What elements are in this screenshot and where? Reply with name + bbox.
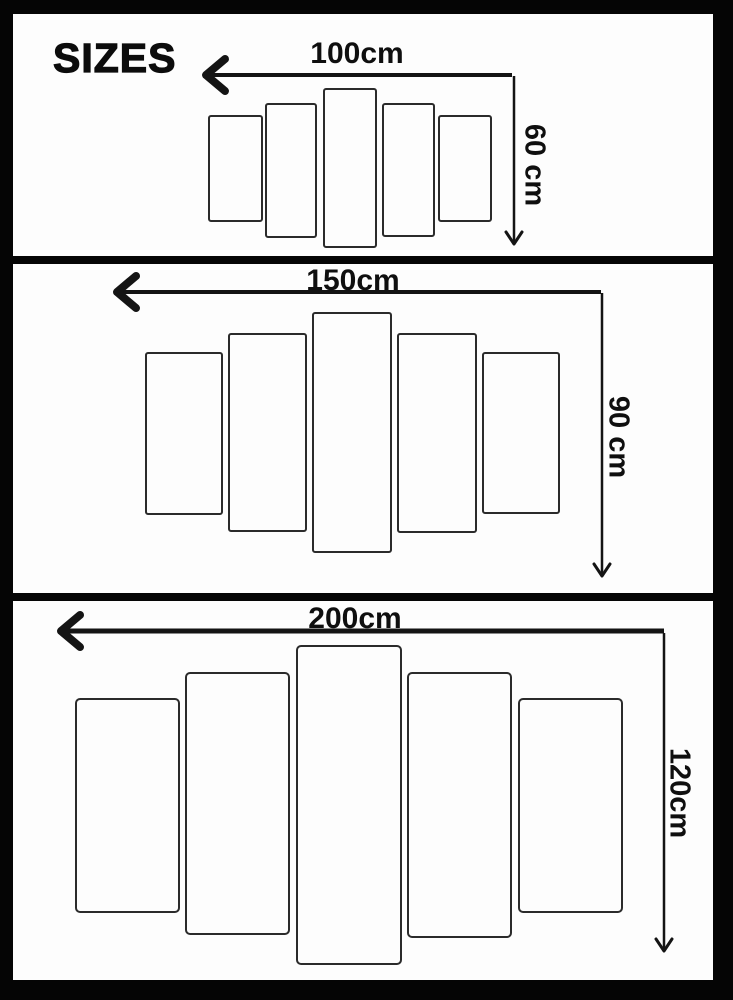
canvas-panel	[438, 115, 492, 222]
height-dimension-label: 120cm	[665, 748, 694, 838]
canvas-panel	[208, 115, 263, 222]
canvas-panel	[75, 698, 180, 913]
canvas-panel	[228, 333, 307, 532]
size-option-200x120: 200cm 120cm	[13, 601, 713, 980]
width-dimension-label: 100cm	[207, 39, 507, 69]
size-option-150x90: 150cm 90 cm	[13, 264, 713, 593]
canvas-panel	[323, 88, 377, 248]
canvas-panel	[518, 698, 623, 913]
canvas-panel	[312, 312, 392, 553]
canvas-panel	[185, 672, 290, 935]
height-dimension-label: 90 cm	[604, 396, 633, 478]
canvas-panel	[296, 645, 402, 965]
canvas-panel	[382, 103, 435, 237]
canvas-panel	[265, 103, 317, 238]
canvas-panel	[482, 352, 560, 514]
size-option-100x60: SIZES 100cm 60 cm	[13, 14, 713, 256]
width-dimension-label: 150cm	[203, 266, 503, 296]
canvas-panel	[397, 333, 477, 533]
canvas-panel	[407, 672, 512, 938]
width-dimension-label: 200cm	[205, 604, 505, 634]
canvas-panel	[145, 352, 223, 515]
height-dimension-label: 60 cm	[520, 124, 549, 206]
